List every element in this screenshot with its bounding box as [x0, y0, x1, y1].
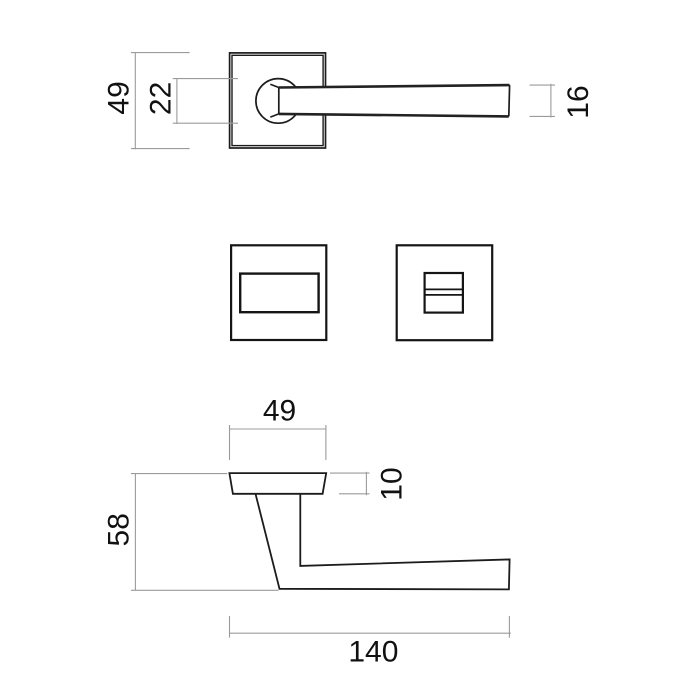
svg-text:58: 58	[103, 513, 136, 546]
svg-text:16: 16	[562, 85, 595, 118]
svg-text:10: 10	[375, 467, 408, 500]
svg-text:49: 49	[263, 395, 296, 428]
svg-text:49: 49	[102, 81, 135, 114]
svg-text:140: 140	[348, 636, 398, 669]
svg-text:22: 22	[145, 82, 178, 115]
